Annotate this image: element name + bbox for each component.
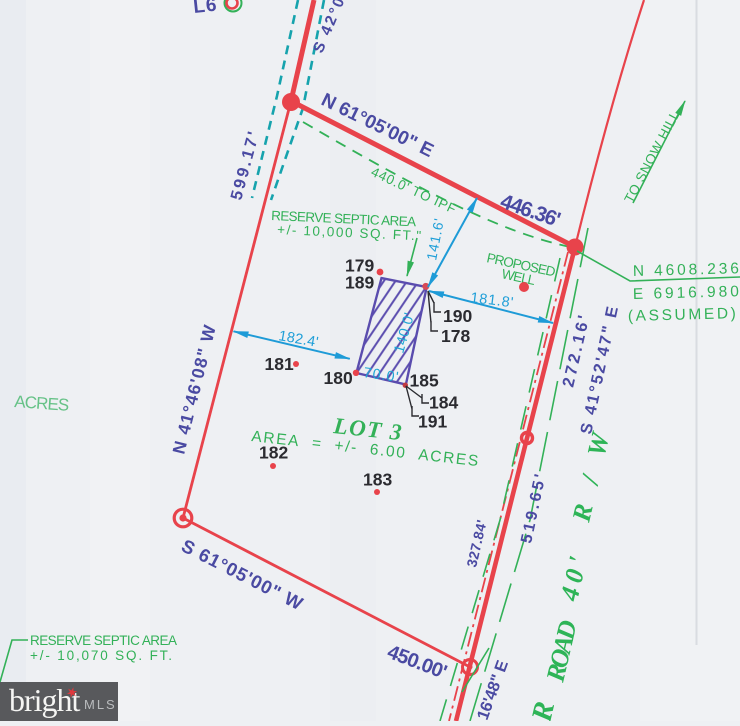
svg-text:178: 178 (441, 326, 470, 346)
svg-text:180: 180 (324, 368, 353, 388)
svg-text:184: 184 (429, 393, 458, 413)
svg-text:RESERVE SEPTIC AREA: RESERVE SEPTIC AREA (30, 633, 177, 648)
svg-text:190: 190 (443, 306, 472, 326)
svg-text:191: 191 (418, 412, 447, 432)
svg-text:185: 185 (410, 371, 439, 391)
svg-text:ACRES: ACRES (14, 392, 71, 415)
svg-text:(ASSUMED): (ASSUMED) (628, 305, 736, 325)
svg-text:bright: bright (9, 682, 81, 718)
svg-text:189: 189 (345, 273, 374, 293)
svg-text:183: 183 (363, 470, 392, 490)
svg-text:+/- 10,070 SQ. FT.: +/- 10,070 SQ. FT. (30, 648, 172, 663)
svg-text:L6: L6 (192, 0, 218, 18)
svg-text:181: 181 (265, 354, 294, 374)
svg-text:MLS: MLS (84, 697, 117, 712)
